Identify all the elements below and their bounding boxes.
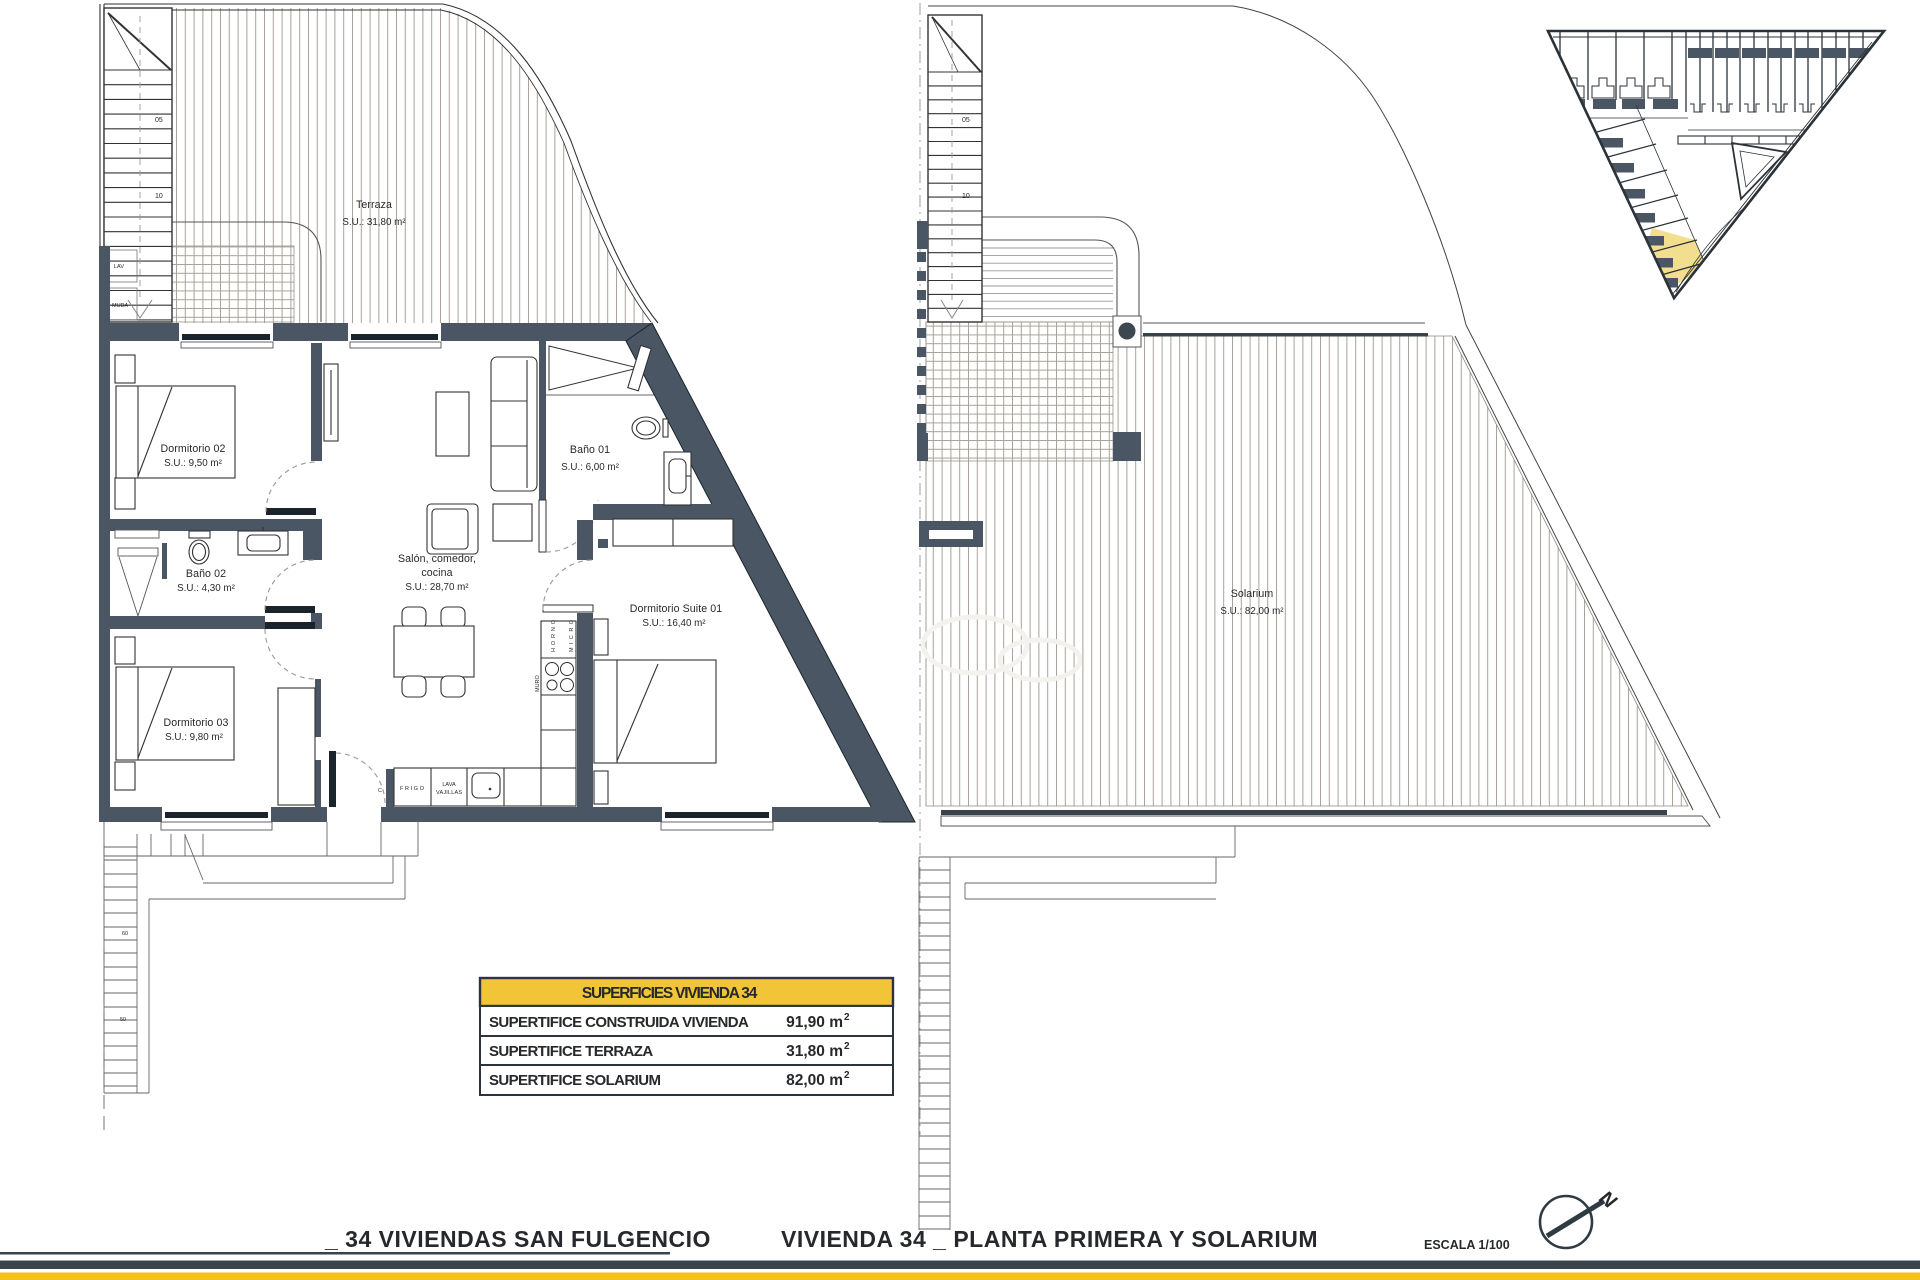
svg-text:SUPERTIFICE TERRAZA: SUPERTIFICE TERRAZA: [489, 1043, 653, 1060]
svg-text:2: 2: [844, 1041, 850, 1052]
svg-text:05: 05: [962, 117, 970, 124]
svg-text:C: C: [378, 788, 382, 794]
svg-text:_ 34 VIVIENDAS SAN FULGENCIO: _ 34 VIVIENDAS SAN FULGENCIO: [324, 1226, 711, 1252]
svg-text:Solarium: Solarium: [1231, 588, 1274, 600]
svg-text:05: 05: [155, 117, 163, 124]
svg-text:60: 60: [122, 931, 128, 937]
svg-text:Baño 01: Baño 01: [570, 444, 610, 456]
svg-text:SUPERTIFICE CONSTRUIDA VIVIEND: SUPERTIFICE CONSTRUIDA VIVIENDA: [489, 1014, 749, 1031]
svg-text:ESCALA 1/100: ESCALA 1/100: [1424, 1238, 1510, 1252]
svg-text:31,80 m: 31,80 m: [786, 1043, 843, 1060]
svg-text:Baño 02: Baño 02: [186, 568, 226, 580]
svg-text:LAV: LAV: [114, 264, 124, 270]
svg-text:S.U.: 31,80 m²: S.U.: 31,80 m²: [342, 217, 406, 228]
svg-text:S.U.: 4,30 m²: S.U.: 4,30 m²: [177, 583, 235, 594]
svg-text:Salón, comedor,: Salón, comedor,: [398, 553, 476, 565]
svg-text:SUPERFICIES VIVIENDA 34: SUPERFICIES VIVIENDA 34: [582, 985, 758, 1002]
svg-text:Dormitorio 02: Dormitorio 02: [161, 443, 226, 455]
svg-text:VIVIENDA 34 _ PLANTA PRIMERA Y: VIVIENDA 34 _ PLANTA PRIMERA Y SOLARIUM: [781, 1226, 1318, 1252]
svg-text:2: 2: [844, 1070, 850, 1081]
svg-text:91,90 m: 91,90 m: [786, 1014, 843, 1031]
svg-text:Dormitorio Suite 01: Dormitorio Suite 01: [630, 603, 723, 615]
svg-text:S.U.: 28,70 m²: S.U.: 28,70 m²: [405, 582, 469, 593]
svg-text:S.U.: 9,80 m²: S.U.: 9,80 m²: [165, 732, 223, 743]
svg-text:MUDA: MUDA: [112, 303, 129, 309]
svg-text:S.U.: 82,00 m²: S.U.: 82,00 m²: [1220, 606, 1284, 617]
svg-text:cocina: cocina: [421, 567, 452, 579]
svg-text:SUPERTIFICE SOLARIUM: SUPERTIFICE SOLARIUM: [489, 1072, 660, 1089]
svg-text:VAJILLAS: VAJILLAS: [436, 790, 462, 796]
svg-text:LAVA: LAVA: [442, 782, 456, 788]
svg-text:S.U.: 16,40 m²: S.U.: 16,40 m²: [642, 618, 706, 629]
svg-text:Terraza: Terraza: [356, 199, 392, 211]
svg-text:82,00 m: 82,00 m: [786, 1072, 843, 1089]
svg-text:S.U.: 6,00 m²: S.U.: 6,00 m²: [561, 462, 619, 473]
svg-text:S.U.: 9,50 m²: S.U.: 9,50 m²: [164, 458, 222, 469]
svg-text:10: 10: [155, 193, 163, 200]
svg-text:2: 2: [844, 1012, 850, 1023]
svg-text:Dormitorio 03: Dormitorio 03: [164, 717, 229, 729]
svg-text:50: 50: [120, 1017, 126, 1023]
svg-text:10: 10: [962, 193, 970, 200]
svg-text:MURO: MURO: [535, 674, 541, 692]
